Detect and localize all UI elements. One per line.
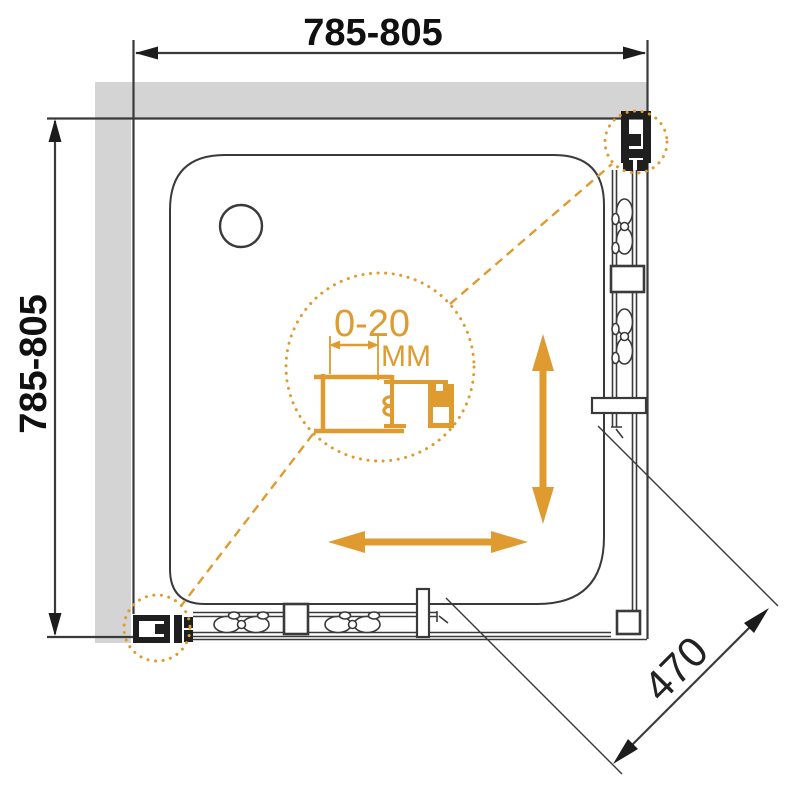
arrowhead-up-icon (49, 119, 62, 142)
adjustment-unit-label: MM (381, 340, 431, 373)
corner-bracket-window (433, 407, 449, 423)
dimension-top-width: 785-805 (135, 12, 646, 60)
vertical-adjust-arrow-icon (532, 334, 554, 524)
bottom-left-profile-detail (133, 615, 193, 643)
bottom-rollers-right (325, 612, 380, 633)
arrowhead-down-icon (49, 613, 62, 636)
bottom-door-assembly (193, 589, 647, 640)
corner-post-block (617, 611, 640, 634)
adjustment-callout: 0-20 MM (124, 111, 667, 661)
drain-circle (220, 205, 262, 247)
left-depth-value: 785-805 (13, 294, 55, 433)
extension-line-a (598, 426, 778, 606)
right-door-assembly (592, 170, 646, 611)
wall-top (95, 82, 648, 118)
callout-leader-bottom-left (181, 434, 313, 606)
wall-left (95, 82, 131, 643)
right-wall-bracket (611, 266, 644, 292)
plan-drawing-canvas: 785-805 785-805 470 (0, 0, 800, 795)
extension-line-b (446, 598, 622, 774)
shower-enclosure-technical-drawing: 785-805 785-805 470 (0, 0, 800, 795)
adjustment-range-value: 0-20 (334, 303, 410, 345)
bottom-wall-bracket (284, 604, 308, 634)
right-sliding-glass (613, 170, 617, 427)
dimension-entry-diagonal: 470 (446, 426, 778, 774)
top-right-profile-detail (621, 111, 651, 171)
callout-leader-top-right (450, 164, 612, 304)
bottom-rollers-left (214, 612, 269, 633)
right-rollers-bottom (612, 309, 633, 364)
right-rail (633, 170, 637, 611)
bottom-door-edge-foot (437, 611, 448, 623)
top-width-value: 785-805 (303, 12, 442, 54)
right-door-edge-foot (611, 427, 623, 438)
arrowhead-left-icon (135, 47, 158, 60)
wall-sections (95, 82, 648, 643)
bottom-door-handle (417, 589, 429, 637)
horizontal-adjust-arrow-icon (328, 531, 528, 553)
right-rollers-top (612, 199, 633, 254)
arrowhead-right-icon (623, 47, 646, 60)
right-door-handle (592, 398, 646, 413)
